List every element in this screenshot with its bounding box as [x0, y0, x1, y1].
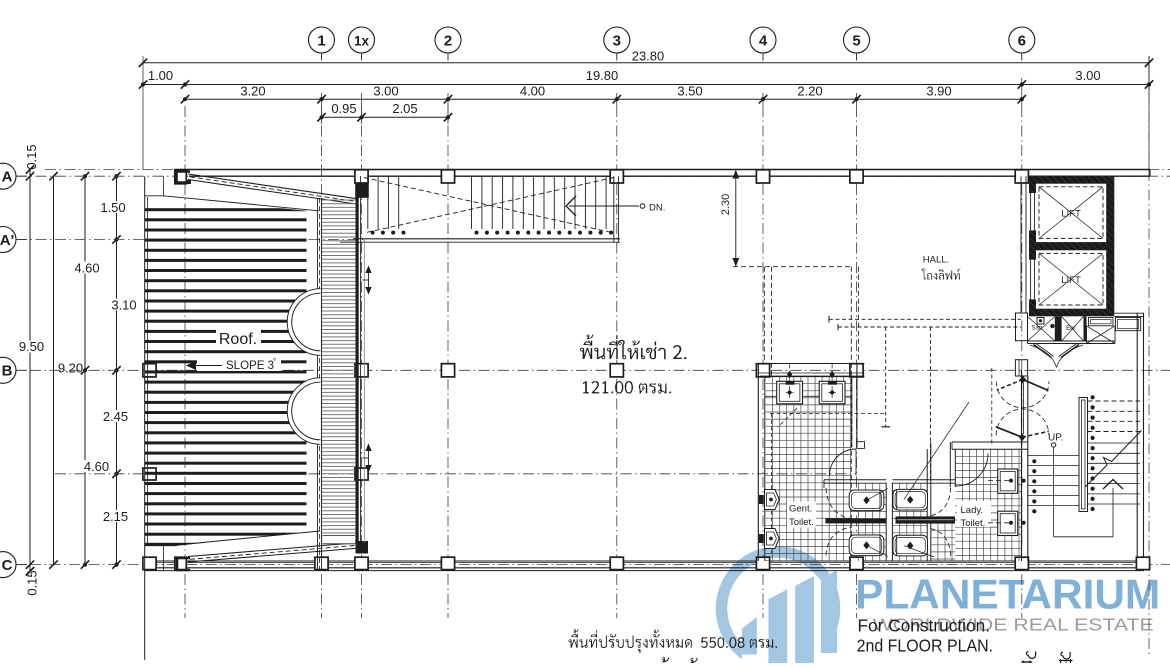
- svg-text:Gent.: Gent.: [789, 504, 812, 515]
- svg-text:HALL.: HALL.: [923, 255, 949, 266]
- svg-text:For Construction.: For Construction.: [858, 616, 991, 636]
- svg-text:3.00: 3.00: [1075, 68, 1100, 83]
- svg-text:DN.: DN.: [649, 203, 665, 214]
- svg-text:1.50: 1.50: [100, 200, 125, 215]
- svg-text:C: C: [2, 557, 13, 574]
- svg-text:LIFT: LIFT: [1061, 275, 1081, 286]
- svg-text:Roof.: Roof.: [219, 331, 257, 348]
- svg-text:LIFT: LIFT: [1061, 209, 1081, 220]
- svg-text:4: 4: [759, 32, 768, 49]
- svg-text:UP.: UP.: [1048, 433, 1063, 444]
- svg-text:6: 6: [1018, 32, 1026, 49]
- svg-text:0.95: 0.95: [331, 101, 356, 116]
- svg-text:San.: San.: [1031, 325, 1044, 332]
- svg-text:2.05: 2.05: [392, 101, 417, 116]
- svg-text:SLOPE 3: SLOPE 3: [226, 360, 274, 372]
- svg-text:19.80: 19.80: [586, 68, 619, 83]
- svg-text:3.00: 3.00: [373, 84, 398, 99]
- svg-text:2.15: 2.15: [103, 509, 128, 524]
- svg-text:5: 5: [852, 32, 860, 49]
- svg-text:2nd FLOOR PLAN.: 2nd FLOOR PLAN.: [857, 636, 994, 656]
- svg-text:1: 1: [317, 32, 325, 49]
- svg-text:B: B: [2, 363, 13, 380]
- svg-text:PLANETARIUM: PLANETARIUM: [855, 570, 1160, 617]
- svg-text:23.80: 23.80: [632, 48, 665, 63]
- svg-text:Lady.: Lady.: [961, 505, 984, 516]
- svg-text:2.20: 2.20: [797, 84, 822, 99]
- svg-text:Toilet.: Toilet.: [961, 518, 986, 529]
- svg-text:9.20: 9.20: [58, 361, 83, 376]
- svg-text:3: 3: [613, 32, 621, 49]
- svg-text:1x: 1x: [354, 33, 370, 48]
- svg-text:2: 2: [444, 32, 452, 49]
- svg-text:3.10: 3.10: [111, 298, 136, 313]
- svg-text:0.15: 0.15: [24, 144, 39, 169]
- svg-text:A: A: [2, 169, 13, 186]
- svg-text:1.00: 1.00: [148, 68, 173, 83]
- svg-text:3.90: 3.90: [926, 84, 951, 99]
- svg-text:4.60: 4.60: [84, 459, 109, 474]
- svg-text:9.50: 9.50: [19, 339, 44, 354]
- svg-text:2.30: 2.30: [720, 194, 732, 215]
- svg-text:4.60: 4.60: [74, 261, 99, 276]
- svg-text:A': A': [0, 232, 14, 249]
- svg-text:Toilet.: Toilet.: [789, 517, 814, 528]
- svg-text:3.20: 3.20: [240, 84, 265, 99]
- svg-text:°: °: [273, 357, 276, 366]
- svg-text:4.00: 4.00: [520, 84, 545, 99]
- svg-text:3.50: 3.50: [677, 84, 702, 99]
- svg-text:Ele.: Ele.: [1066, 325, 1077, 332]
- svg-text:2.45: 2.45: [103, 409, 128, 424]
